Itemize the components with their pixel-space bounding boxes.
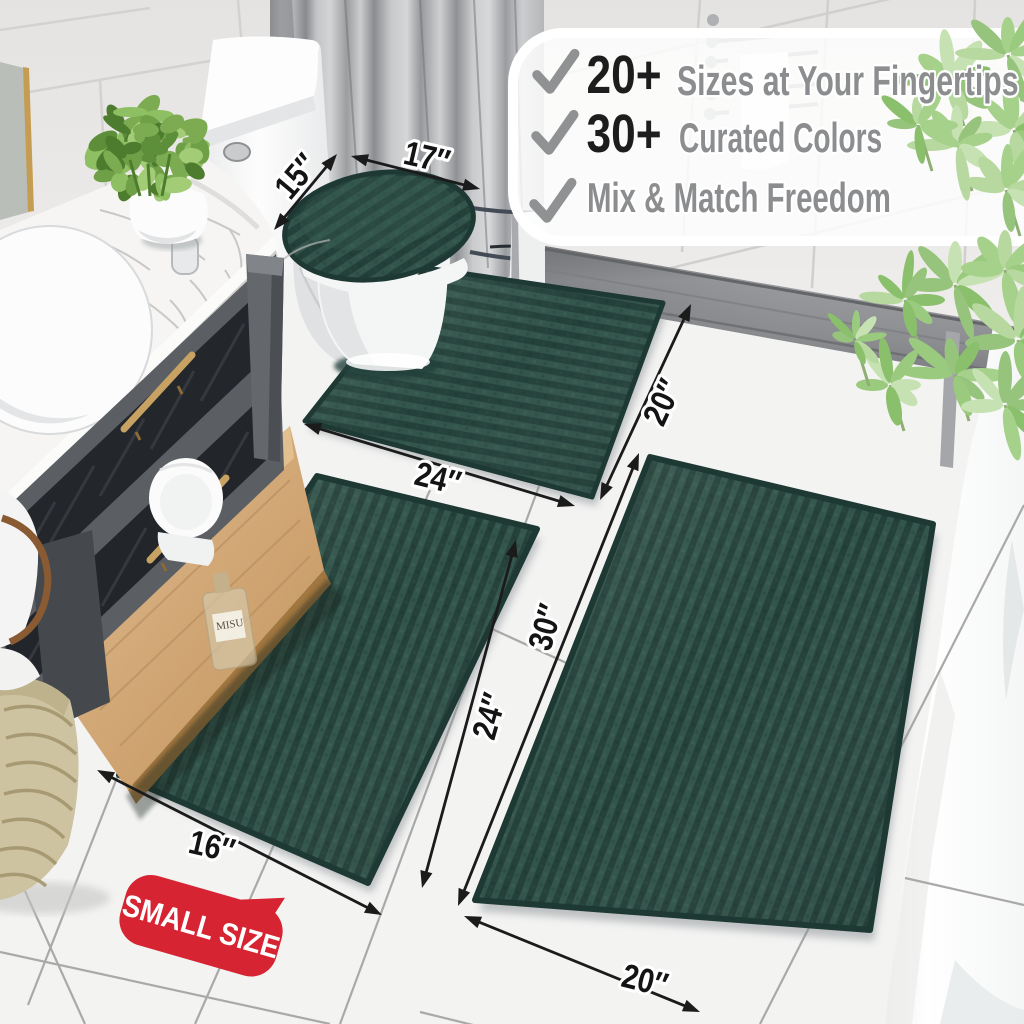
svg-text:20″: 20″ bbox=[635, 373, 690, 431]
svg-text:24″: 24″ bbox=[464, 689, 514, 744]
svg-text:Mix & Match Freedom: Mix & Match Freedom bbox=[587, 174, 891, 222]
svg-text:Sizes at Your Fingertips: Sizes at Your Fingertips bbox=[677, 57, 1019, 104]
svg-text:30+: 30+ bbox=[586, 104, 661, 164]
svg-text:20″: 20″ bbox=[618, 956, 672, 1005]
svg-text:20+: 20+ bbox=[586, 45, 661, 105]
svg-text:Curated Colors: Curated Colors bbox=[679, 114, 882, 161]
